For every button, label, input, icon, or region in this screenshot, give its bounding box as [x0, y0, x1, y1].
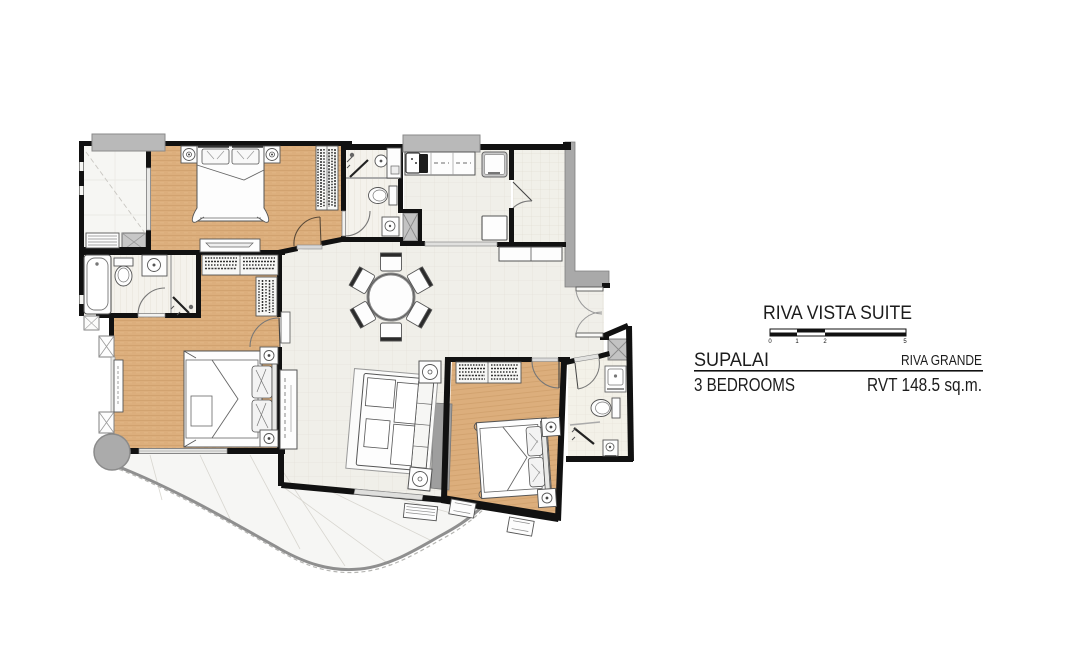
svg-text:RIVA GRANDE: RIVA GRANDE [901, 352, 982, 369]
svg-text:SUPALAI: SUPALAI [694, 350, 769, 371]
svg-text:RVT 148.5 sq.m.: RVT 148.5 sq.m. [867, 374, 982, 395]
svg-text:3 BEDROOMS: 3 BEDROOMS [694, 374, 795, 395]
svg-text:RIVA VISTA SUITE: RIVA VISTA SUITE [763, 303, 912, 324]
